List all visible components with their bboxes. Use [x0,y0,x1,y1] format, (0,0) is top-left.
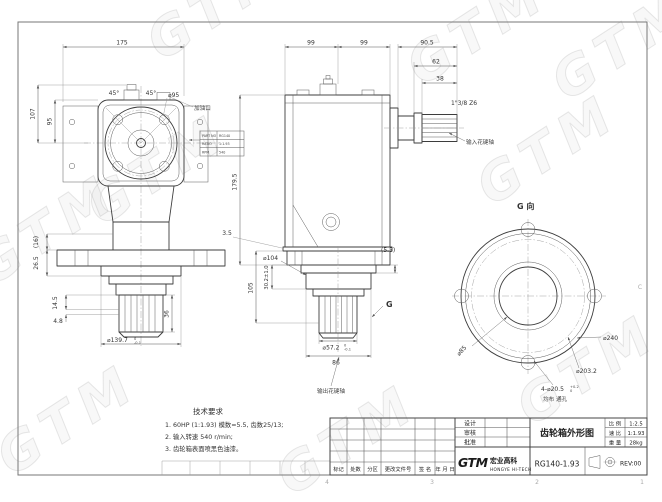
dim-240: ⌀240 [603,335,618,342]
dim-57-2: ⌀57.2 [323,345,340,352]
dim-holes-tol-bot: 0 [570,389,573,393]
g-view: G 向 ⌀240 ⌀203.2 4-⌀20.5 +0.2 0 均布 通孔 ⌀85 [452,201,618,403]
dim-99a: 99 [307,40,315,47]
dim-4-8: 4.8 [53,318,63,325]
dim-139-7-tol-bot: -0.1 [134,341,141,345]
zone-number: 2 [535,479,539,486]
zone-number: 3 [430,479,434,486]
change-col: 处数 [350,465,361,473]
dim-104: ⌀104 [263,255,278,262]
company-name-en: HONGYE HI-TECH [490,467,532,472]
nameplate-value: 1:1.93 [219,142,230,146]
oil-port-label: 加油口 [194,104,211,112]
company-logo: GTM [458,455,489,470]
breather-plug [320,84,336,95]
g-view-title: G 向 [517,201,534,211]
nameplate-key: RPM [202,150,209,154]
weight-value: 28kg [629,441,642,447]
dim-holes: 4-⌀20.5 [541,386,564,393]
dim-86: 86 [332,360,340,367]
revision-text: REV:00 [620,461,641,468]
weight-label: 重 量 [609,439,622,447]
nameplate-key: RATIO [202,142,212,146]
dim-57-2-tol-bot: -0.1 [344,348,351,352]
level-plug [323,214,340,231]
change-col: 标记 [333,465,344,473]
input-shaft [384,108,464,148]
tech-req-item: 1. 60HP (1:1.93) 模数=5.5, 齿数25/13; [165,420,283,429]
change-col: 更改文件号 [385,465,412,473]
output-shaft-label: 输出花键轴 [317,387,345,395]
dim-90-5: 90.5 [420,40,434,47]
front-view: 175 45° 45° ⌀95 加油口 107 95 (16) 26.5 [30,40,245,348]
ratio-label: 速 比 [609,429,621,437]
projection-symbol-icon [589,456,617,469]
dim-3-5: 3.5 [222,230,232,237]
change-col: 分区 [367,465,378,473]
sign-label-check: 审核 [464,429,476,437]
dim-139-7: ⌀139.7 [107,337,128,344]
dim-85: ⌀85 [456,344,469,357]
dim-105: 105 [248,282,255,294]
drawing-canvas: 4 3 2 1 C [0,0,662,502]
fold-mark: C [638,284,642,291]
dim-26-5: 26.5 [33,256,40,270]
dim-5-5: (5.5) [381,247,395,254]
zone-number: 4 [325,479,329,486]
dim-99b: 99 [360,40,368,47]
dim-203-2: ⌀203.2 [576,368,597,375]
drawing-sheet: GTM GTM GTM GTM GTM GTM GTM GTM GTM 4 3 … [0,0,662,502]
tech-req-heading: 技术要求 [193,406,223,416]
company-name-cn: 宏业高科 [490,456,517,465]
scale-value: 1:2.5 [629,422,643,428]
oil-plug [124,90,139,100]
nameplate: PART NO RG140 RATIO 1:1.93 RPM 540 [189,131,244,156]
nameplate-value: 540 [219,150,225,154]
drawing-title: 齿轮箱外形图 [540,427,594,439]
ratio-value: 1:1.93 [628,431,645,437]
change-col: 年 月 日 [435,465,454,473]
dim-62: 62 [432,59,440,66]
side-view: 99 99 90.5 62 38 1"3/8 Z6 输入花键轴 179.5 3.… [222,40,494,396]
change-col: 签 名 [419,465,431,473]
zone-number: 1 [640,479,644,486]
sign-label-design: 设计 [464,420,476,428]
nameplate-value: RG140 [219,134,230,138]
dim-38: 38 [436,76,444,83]
tech-req-item: 2. 输入转速 540 r/min; [165,432,233,441]
dim-14-5: 14.5 [52,296,59,310]
tech-requirements: 技术要求 1. 60HP (1:1.93) 模数=5.5, 齿数25/13; 2… [165,406,283,453]
sign-label-approve: 批准 [464,439,476,447]
dim-ref16: (16) [33,236,40,248]
tech-req-item: 3. 齿轮箱表面喷黑色油漆。 [165,444,242,453]
dim-175: 175 [116,40,128,47]
dim-45-left: 45° [109,90,120,97]
input-spline-spec: 1"3/8 Z6 [451,100,477,107]
input-shaft-label: 输入花键轴 [466,138,494,146]
holes-note: 均布 通孔 [543,395,568,403]
dim-107: 107 [30,108,37,120]
g-direction-mark: G [386,300,393,309]
dim-36: 36 [164,310,171,318]
dim-30-2: 30.2±1.0 [264,265,270,289]
dim-179-5: 179.5 [232,173,239,190]
dim-bolt-circle-95: ⌀95 [168,92,179,99]
nameplate-key: PART NO [202,134,217,138]
dim-45-right: 45° [146,90,157,97]
dim-95: 95 [47,118,54,126]
scale-label: 比 例 [609,420,621,428]
part-number: RG140-1.93 [535,460,580,469]
